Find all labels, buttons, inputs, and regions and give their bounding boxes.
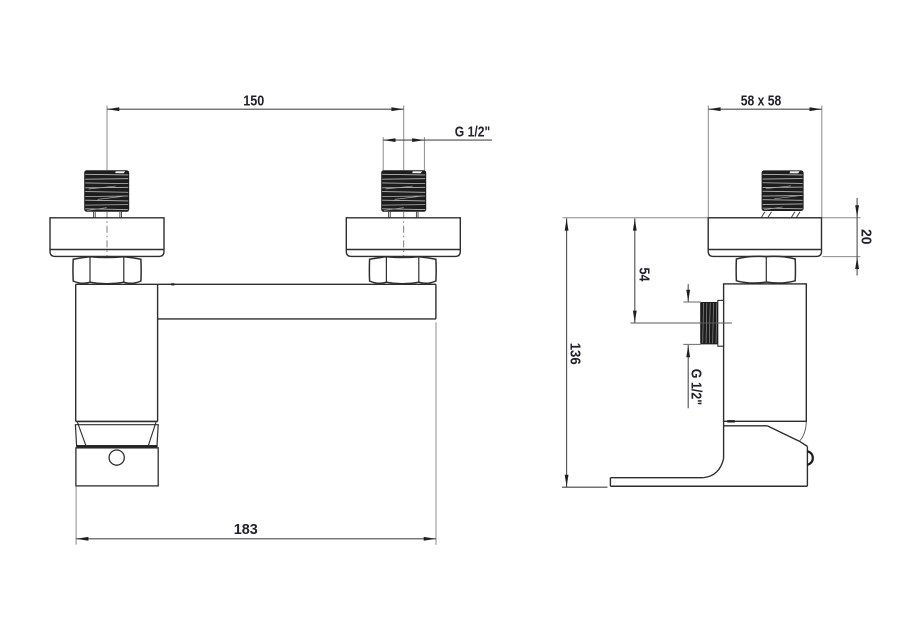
svg-text:G 1/2": G 1/2" bbox=[455, 124, 490, 141]
svg-text:54: 54 bbox=[635, 268, 652, 283]
svg-text:136: 136 bbox=[567, 343, 584, 365]
svg-text:58 x 58: 58 x 58 bbox=[741, 92, 782, 109]
svg-text:G 1/2": G 1/2" bbox=[688, 369, 705, 405]
svg-text:183: 183 bbox=[234, 521, 258, 538]
svg-text:150: 150 bbox=[243, 92, 264, 109]
svg-text:20: 20 bbox=[857, 229, 874, 245]
